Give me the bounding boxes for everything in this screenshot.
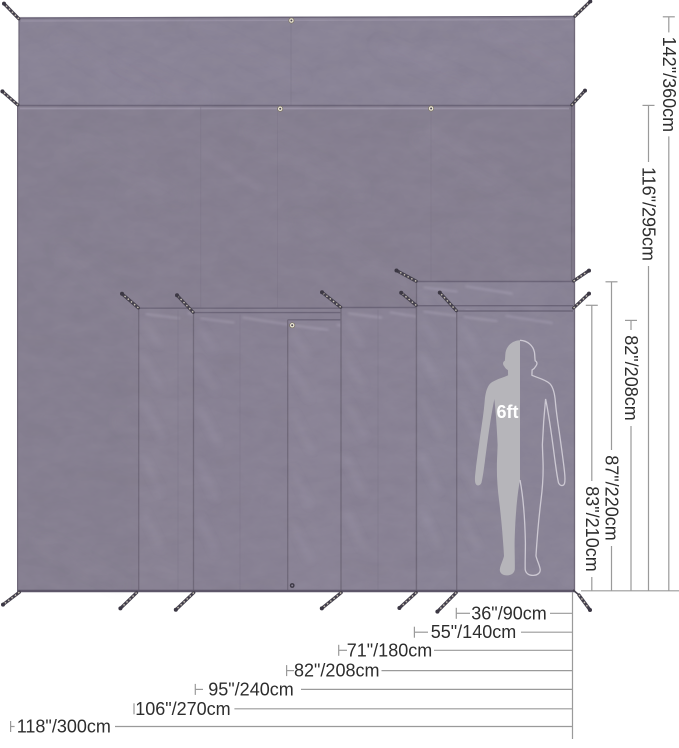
svg-text:82"/208cm: 82"/208cm	[621, 335, 641, 420]
svg-text:142"/360cm: 142"/360cm	[659, 37, 679, 132]
svg-text:71"/180cm: 71"/180cm	[347, 640, 432, 660]
svg-text:87"/220cm: 87"/220cm	[602, 455, 622, 540]
svg-text:82"/208cm: 82"/208cm	[294, 661, 379, 681]
svg-text:116"/295cm: 116"/295cm	[639, 167, 659, 261]
svg-text:83"/210cm: 83"/210cm	[582, 486, 602, 571]
svg-text:55"/140cm: 55"/140cm	[431, 622, 516, 642]
svg-text:95"/240cm: 95"/240cm	[208, 679, 293, 699]
svg-text:36"/90cm: 36"/90cm	[471, 603, 546, 623]
svg-text:106"/270cm: 106"/270cm	[135, 699, 230, 719]
svg-text:118"/300cm: 118"/300cm	[17, 717, 111, 737]
svg-text:6ft: 6ft	[497, 402, 519, 422]
